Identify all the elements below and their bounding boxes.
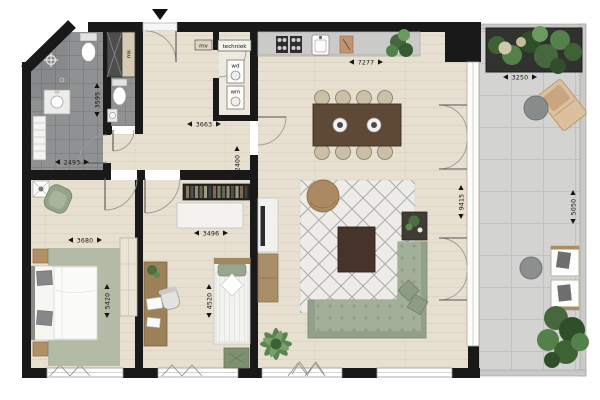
tv-screen <box>261 206 266 246</box>
towel-radiator <box>33 116 46 160</box>
wall-bottom-3 <box>238 368 262 378</box>
shaft <box>107 32 122 77</box>
svg-text:3496: 3496 <box>203 230 220 237</box>
svg-text:2493: 2493 <box>64 159 81 166</box>
wall-facade-bottom <box>468 346 479 378</box>
bed-pillow-2 <box>36 310 52 325</box>
wall-living-left-a <box>250 22 258 117</box>
single-bed <box>214 258 250 344</box>
balcony-rail-bottom <box>479 370 586 376</box>
wall-bedrooms-top-1 <box>22 170 105 180</box>
wall-wc-bottom <box>103 126 112 134</box>
ottoman <box>224 348 249 368</box>
dining-table <box>313 104 401 146</box>
wall-living-left-b <box>250 155 258 368</box>
svg-text:7277: 7277 <box>358 59 375 66</box>
desk-papers-2 <box>147 317 161 327</box>
wd-label: wd <box>231 64 240 70</box>
wall-facade-top <box>468 22 479 62</box>
floor-plan-drawing: mk mv techniek wd wm <box>0 0 600 400</box>
wall-bottom-2 <box>123 368 158 378</box>
techniek-label: techniek <box>222 44 247 50</box>
toilet-bathroom <box>80 33 97 62</box>
nightstand-1 <box>33 249 48 263</box>
desk-papers-1 <box>146 297 162 310</box>
toilet-wc-bowl <box>113 87 126 105</box>
vanity-sink <box>44 90 70 114</box>
svg-text:5050: 5050 <box>570 199 577 216</box>
wall-left <box>22 62 31 372</box>
kitchen-sink-icon <box>312 35 329 55</box>
svg-text:3680: 3680 <box>77 237 94 244</box>
nightstand-2 <box>33 342 48 356</box>
toilet-wc-tank <box>112 79 127 86</box>
mk-label: mk <box>127 49 133 58</box>
balcony-chair-2 <box>551 280 579 310</box>
svg-text:3663: 3663 <box>196 121 213 128</box>
bookshelf <box>183 184 250 200</box>
front-door-threshold <box>143 23 177 31</box>
washer-dryer-wd: wd <box>227 60 244 83</box>
svg-text:5420: 5420 <box>104 293 111 310</box>
wall-top <box>177 22 468 32</box>
dining-area <box>313 91 401 160</box>
wall-bottom-4 <box>342 368 377 378</box>
wall-bedrooms-top-2 <box>137 170 145 180</box>
wall-top-left <box>88 22 143 32</box>
entrance-marker-icon <box>152 9 168 20</box>
wm-label: wm <box>230 90 240 96</box>
coffee-table <box>338 227 375 272</box>
wall-utility-bottom <box>213 115 258 121</box>
wall-closet-right <box>135 32 143 134</box>
meter-closet: mk <box>122 32 135 77</box>
mv-label: mv <box>199 44 208 50</box>
balcony-side-table <box>524 96 548 120</box>
svg-text:3595: 3595 <box>94 92 101 109</box>
balcony-chair-1 <box>551 246 579 276</box>
wall-utility-left-b <box>213 78 219 115</box>
cutting-board-icon <box>340 36 353 53</box>
tv-unit <box>258 198 278 302</box>
balcony-round-table <box>520 257 542 279</box>
bed-pillow-1 <box>37 270 53 285</box>
svg-text:2400: 2400 <box>234 155 241 172</box>
living-plant-icon <box>260 328 292 360</box>
wall-bedrooms-top-3 <box>180 170 258 180</box>
wall-bottom-1 <box>22 368 47 378</box>
wardrobe <box>120 238 137 316</box>
svg-text:9415: 9415 <box>458 194 465 211</box>
floor-plan-page: mk mv techniek wd wm <box>0 0 600 400</box>
washing-machine-wm: wm <box>227 86 244 109</box>
svg-text:4520: 4520 <box>206 293 213 310</box>
kitchen <box>258 29 420 57</box>
pouf <box>307 180 339 212</box>
double-bed <box>31 266 97 340</box>
sofa-side-table <box>402 212 427 240</box>
svg-text:3250: 3250 <box>512 74 529 81</box>
floating-shelf <box>177 203 243 228</box>
